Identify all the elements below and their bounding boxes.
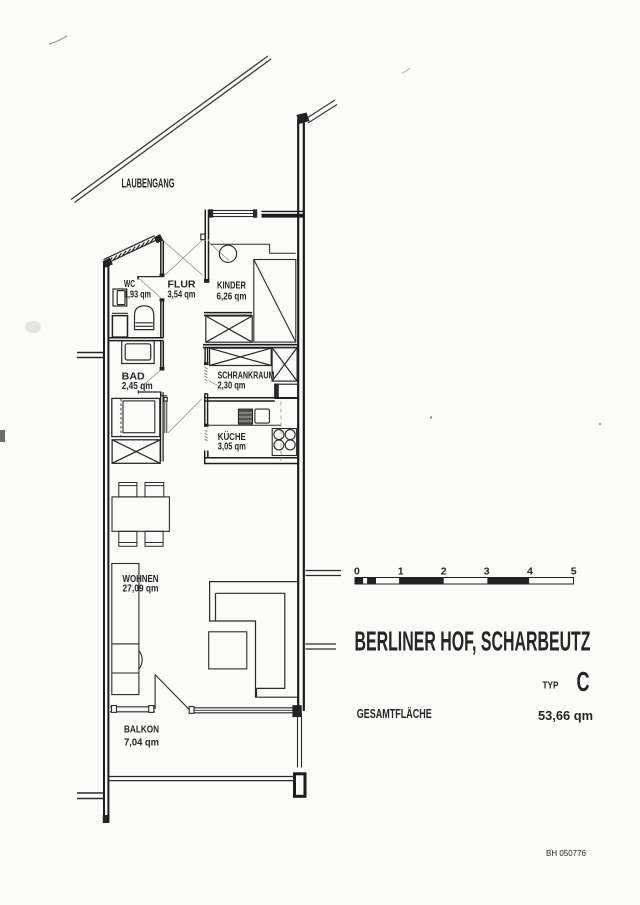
svg-text:BH 050776: BH 050776 <box>546 848 586 858</box>
svg-text:2,30 qm: 2,30 qm <box>218 380 246 392</box>
svg-text:TYP: TYP <box>543 680 559 692</box>
svg-text:27,09 qm: 27,09 qm <box>123 583 159 595</box>
svg-text:3,54 qm: 3,54 qm <box>168 289 196 301</box>
svg-text:2: 2 <box>441 566 447 578</box>
svg-text:2,45 qm: 2,45 qm <box>122 380 153 392</box>
svg-text:4: 4 <box>527 566 533 578</box>
svg-text:3,05 qm: 3,05 qm <box>218 441 246 453</box>
svg-text:5: 5 <box>571 566 577 578</box>
svg-text:1: 1 <box>398 566 404 578</box>
svg-text:7,04 qm: 7,04 qm <box>124 737 159 749</box>
svg-text:BERLINER HOF, SCHARBEUTZ: BERLINER HOF, SCHARBEUTZ <box>355 626 591 657</box>
svg-text:1,93 qm: 1,93 qm <box>124 289 151 301</box>
svg-text:53,66 qm: 53,66 qm <box>538 708 593 723</box>
svg-text:0: 0 <box>354 566 360 578</box>
svg-text:BALKON: BALKON <box>124 724 159 736</box>
svg-text:GESAMTFLÄCHE: GESAMTFLÄCHE <box>357 706 432 721</box>
svg-text:LAUBENGANG: LAUBENGANG <box>122 177 175 191</box>
svg-text:6,26 qm: 6,26 qm <box>217 291 247 303</box>
svg-text:C: C <box>577 666 590 697</box>
svg-text:3: 3 <box>484 566 490 578</box>
